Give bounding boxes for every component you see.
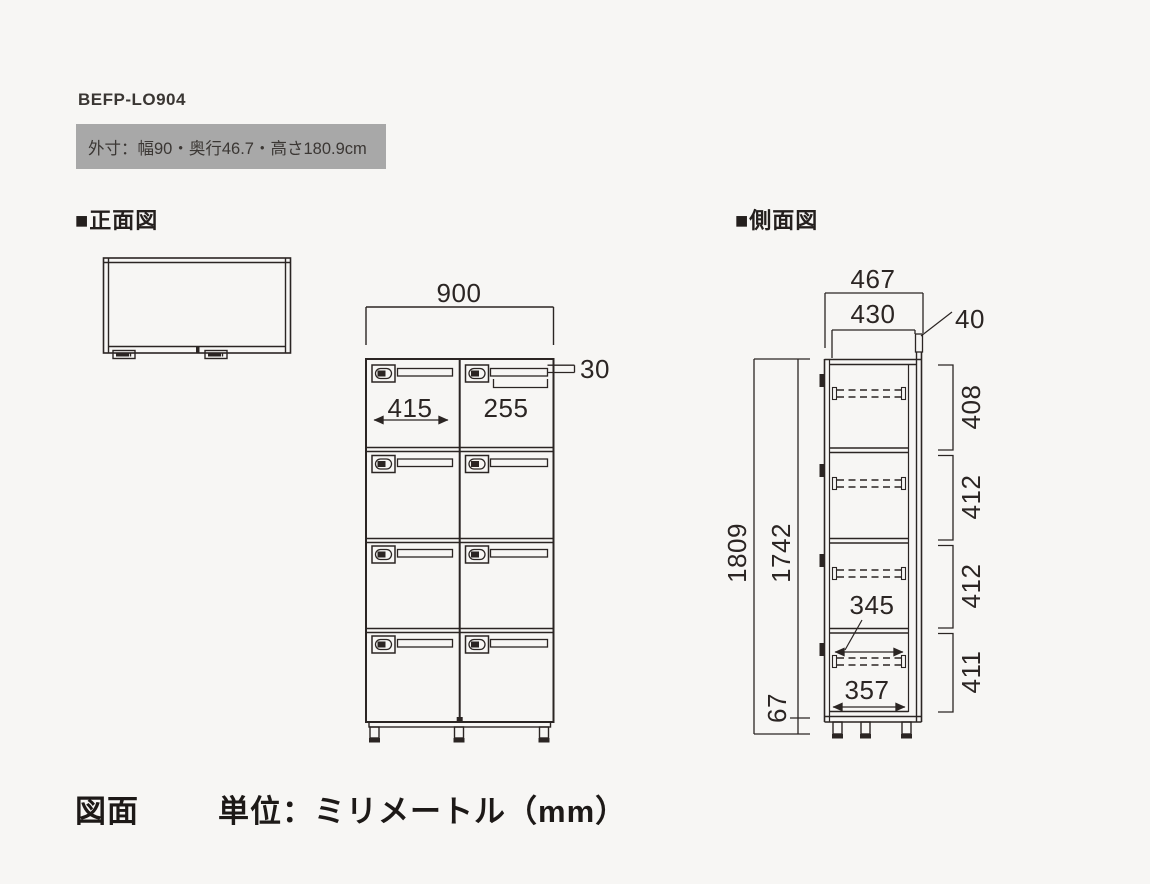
dim-overall-width: 900 <box>429 280 489 306</box>
side-rail-endcaps <box>833 388 906 668</box>
dim-inner-depth: 430 <box>843 301 903 327</box>
side-depth-inner-dim <box>832 330 915 358</box>
dim-nameplate-height: 30 <box>580 356 610 382</box>
outer-dimensions-box: 外寸：幅90・奥行46.7・高さ180.9cm <box>76 124 386 169</box>
side-shelf <box>830 448 909 453</box>
dim-compartment-2: 412 <box>958 467 984 527</box>
dim-door-width: 415 <box>380 395 440 421</box>
dim-body-height: 1742 <box>768 513 794 593</box>
dim-hanger-rail-length: 345 <box>842 592 902 618</box>
dim-base-height: 67 <box>764 688 790 728</box>
front-view-drawing <box>366 307 575 743</box>
dim-compartment-3: 412 <box>958 556 984 616</box>
front-view-title: ■正面図 <box>75 203 158 235</box>
side-hanger-rails <box>837 390 901 665</box>
back-rail <box>916 334 923 352</box>
dim-compartment-4: 411 <box>958 642 984 702</box>
unit-label: 単位：ミリメートル（mm） <box>218 786 627 831</box>
nameplate-height-callout <box>548 365 575 372</box>
compartment-bracket <box>938 634 953 713</box>
top-view-lock-icon <box>205 351 227 359</box>
front-center-latch <box>457 717 463 722</box>
compartment-bracket <box>938 456 953 541</box>
side-view-title: ■側面図 <box>735 203 818 235</box>
top-view-drawing <box>104 258 291 359</box>
back-rail-leader <box>921 312 952 336</box>
spec-drawing-page: BEFP-LO904 外寸：幅90・奥行46.7・高さ180.9cm ■正面図 … <box>0 0 1150 884</box>
side-shelf <box>830 539 909 544</box>
dim-compartment-1: 408 <box>958 377 984 437</box>
side-bottom <box>825 712 922 723</box>
side-top-panel <box>825 360 923 365</box>
side-shelf <box>830 629 909 634</box>
outer-dimensions-text: 外寸：幅90・奥行46.7・高さ180.9cm <box>88 135 367 159</box>
dim-overall-depth: 467 <box>843 266 903 292</box>
dim-interior-depth: 357 <box>837 677 897 703</box>
drawing-label: 図面 <box>75 786 139 831</box>
dim-nameplate-width: 255 <box>476 395 536 421</box>
rail-length-leader <box>845 620 862 650</box>
dim-overall-height: 1809 <box>724 513 750 593</box>
top-view-lock-icon <box>113 351 135 359</box>
front-legs <box>369 727 550 743</box>
compartment-bracket <box>938 365 953 450</box>
dim-back-rail: 40 <box>955 306 985 332</box>
compartment-bracket <box>938 546 953 629</box>
top-view-center-latch <box>196 347 200 353</box>
front-width-dim-lines <box>366 307 554 345</box>
nameplate-width-bracket <box>494 379 548 388</box>
side-legs <box>832 722 912 739</box>
product-code: BEFP-LO904 <box>78 90 186 110</box>
